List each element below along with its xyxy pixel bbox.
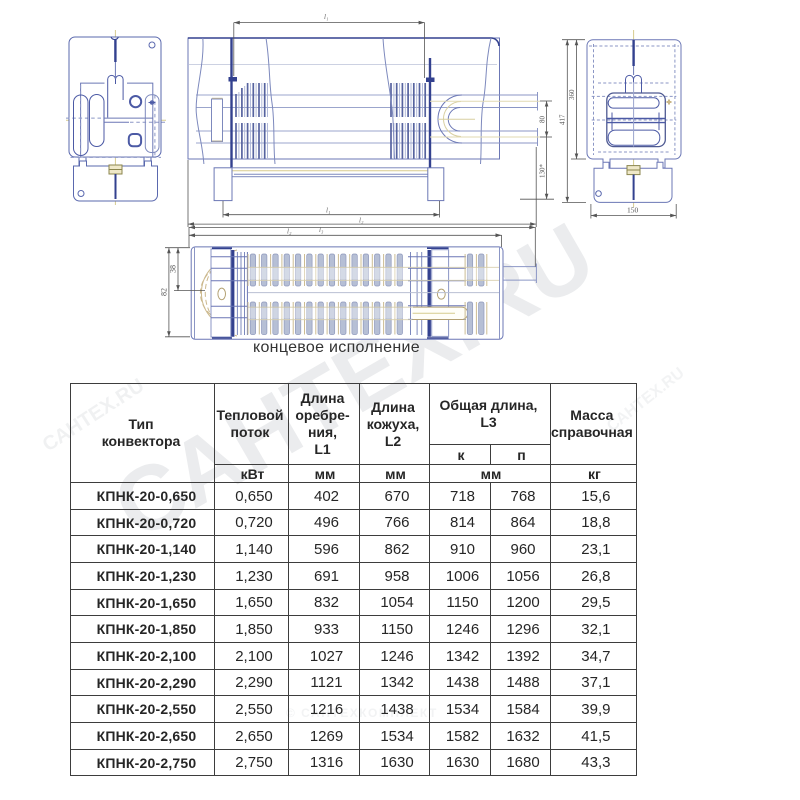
svg-text:l₂: l₂	[287, 228, 292, 236]
svg-text:82: 82	[160, 288, 169, 296]
svg-text:360: 360	[568, 89, 576, 100]
svg-text:l₁: l₁	[324, 13, 328, 21]
svg-text:417: 417	[559, 114, 567, 125]
svg-text:80: 80	[539, 116, 547, 124]
svg-text:l₃: l₃	[319, 226, 324, 234]
svg-text:l₂: l₂	[359, 217, 364, 225]
svg-text:38: 38	[169, 265, 178, 273]
svg-text:l₁: l₁	[326, 207, 330, 215]
svg-text:150: 150	[627, 206, 639, 215]
svg-text:130*: 130*	[539, 164, 547, 179]
